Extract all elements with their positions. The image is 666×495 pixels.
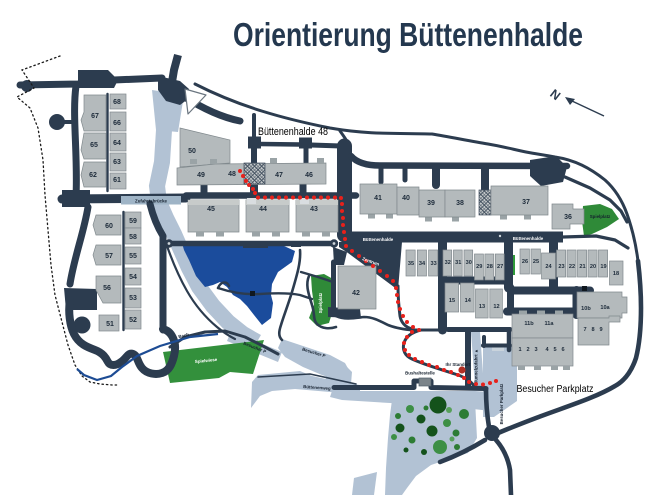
- svg-text:7: 7: [583, 327, 586, 333]
- svg-text:39: 39: [427, 200, 435, 207]
- svg-text:3: 3: [534, 347, 537, 353]
- svg-text:32: 32: [445, 260, 451, 266]
- svg-text:66: 66: [113, 120, 121, 127]
- svg-text:60: 60: [105, 223, 113, 230]
- svg-text:38: 38: [456, 200, 464, 207]
- svg-text:27: 27: [497, 264, 503, 270]
- svg-text:2: 2: [526, 347, 529, 353]
- svg-text:59: 59: [129, 218, 137, 225]
- svg-text:22: 22: [569, 264, 575, 270]
- svg-text:50: 50: [188, 148, 196, 155]
- svg-text:Orientierung Büttenenhalde: Orientierung Büttenenhalde: [233, 16, 583, 53]
- svg-text:49: 49: [197, 172, 205, 179]
- svg-text:37: 37: [522, 199, 530, 206]
- svg-text:36: 36: [564, 214, 572, 221]
- svg-text:6: 6: [561, 347, 564, 353]
- svg-text:31: 31: [455, 260, 461, 266]
- svg-text:46: 46: [305, 172, 313, 179]
- svg-text:19: 19: [600, 264, 606, 270]
- svg-text:9: 9: [599, 327, 602, 333]
- svg-text:Büttenenhalde: Büttenenhalde: [513, 236, 544, 241]
- svg-text:Spielplatz: Spielplatz: [318, 292, 323, 313]
- svg-text:61: 61: [113, 177, 121, 184]
- svg-text:63: 63: [113, 159, 121, 166]
- svg-text:47: 47: [275, 172, 283, 179]
- svg-text:5: 5: [553, 347, 556, 353]
- svg-text:11a: 11a: [544, 321, 554, 327]
- svg-text:35: 35: [408, 261, 414, 267]
- svg-text:41: 41: [374, 195, 382, 202]
- svg-text:Büttenenhalde 48: Büttenenhalde 48: [258, 126, 328, 138]
- svg-text:10a: 10a: [600, 305, 610, 311]
- svg-text:55: 55: [129, 253, 137, 260]
- svg-text:42: 42: [352, 290, 360, 297]
- svg-text:51: 51: [106, 321, 114, 328]
- svg-text:13: 13: [479, 304, 485, 310]
- svg-text:68: 68: [113, 99, 121, 106]
- svg-text:18: 18: [613, 271, 619, 277]
- svg-text:Spielplatz: Spielplatz: [590, 214, 611, 219]
- svg-text:24: 24: [545, 264, 552, 270]
- svg-text:43: 43: [310, 206, 318, 213]
- svg-text:33: 33: [430, 261, 436, 267]
- svg-text:58: 58: [129, 234, 137, 241]
- svg-text:Besucher Parkplatz: Besucher Parkplatz: [517, 384, 594, 395]
- svg-text:15: 15: [449, 298, 455, 304]
- svg-text:Zufahrtsbrücke: Zufahrtsbrücke: [135, 199, 168, 204]
- svg-text:11b: 11b: [524, 321, 534, 327]
- svg-text:40: 40: [402, 195, 410, 202]
- svg-text:29: 29: [476, 264, 482, 270]
- svg-text:56: 56: [103, 285, 111, 292]
- svg-text:23: 23: [558, 264, 564, 270]
- svg-text:25: 25: [533, 259, 539, 265]
- svg-text:14: 14: [465, 298, 472, 304]
- svg-text:12: 12: [493, 304, 499, 310]
- svg-text:Tunnelzufahrt ▲: Tunnelzufahrt ▲: [474, 349, 479, 383]
- svg-text:67: 67: [91, 113, 99, 120]
- svg-text:Bushaltestelle: Bushaltestelle: [405, 371, 435, 376]
- svg-text:54: 54: [129, 274, 137, 281]
- svg-text:52: 52: [129, 317, 137, 324]
- svg-text:62: 62: [89, 172, 97, 179]
- svg-text:57: 57: [105, 253, 113, 260]
- svg-text:65: 65: [90, 142, 98, 149]
- svg-text:30: 30: [466, 260, 472, 266]
- svg-text:64: 64: [113, 140, 121, 147]
- svg-text:20: 20: [590, 264, 596, 270]
- svg-text:26: 26: [522, 259, 528, 265]
- svg-text:21: 21: [579, 264, 585, 270]
- svg-text:45: 45: [207, 206, 215, 213]
- svg-text:1: 1: [518, 347, 521, 353]
- svg-text:8: 8: [591, 327, 594, 333]
- svg-text:28: 28: [487, 264, 493, 270]
- svg-text:Ihr Standort: Ihr Standort: [446, 362, 471, 367]
- svg-text:44: 44: [259, 206, 267, 213]
- svg-text:Büttenenhalde: Büttenenhalde: [363, 237, 394, 242]
- svg-text:48: 48: [228, 171, 236, 178]
- svg-text:10b: 10b: [581, 306, 591, 312]
- svg-text:53: 53: [129, 295, 137, 302]
- svg-text:Besucher Parkplatz: Besucher Parkplatz: [499, 383, 504, 425]
- svg-text:34: 34: [419, 261, 426, 267]
